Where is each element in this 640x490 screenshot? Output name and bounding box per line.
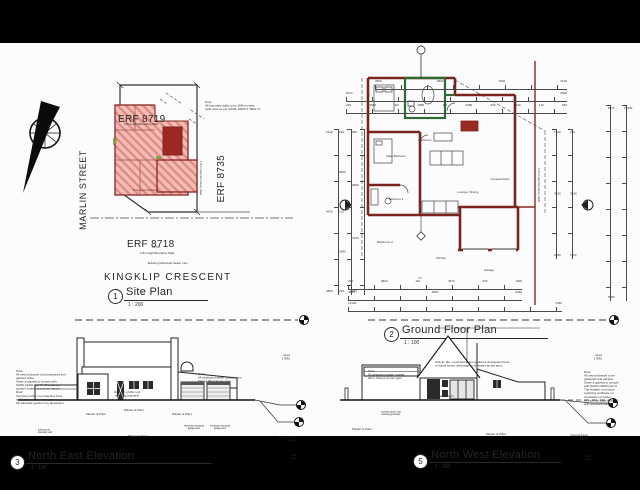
dim-value: 2980	[466, 104, 473, 107]
nw-plaster-gable: Plaster & Paint	[434, 395, 454, 399]
site-plan-number-bubble: 1	[108, 289, 123, 304]
garage-door-line: garage door	[183, 428, 205, 431]
nw-apex-label: Apex 17640	[562, 354, 602, 361]
nw-number: 5	[418, 457, 422, 466]
boundary-wall-text-right: 1.8m High Boundary Wall	[199, 161, 202, 195]
nw-number-bubble: 5	[413, 454, 428, 469]
ne-scale: 1 : 100	[31, 465, 46, 471]
note-line: alum. frames as per spec.	[368, 377, 423, 381]
dim-value: 8110	[346, 92, 352, 95]
survey-datum-markers	[295, 316, 309, 427]
dim-value: 230	[491, 104, 496, 107]
dim-value: 1880	[417, 104, 424, 107]
nw-title-underline	[429, 462, 561, 463]
low-wall-line: boundary wall	[38, 432, 68, 435]
gfp-dims-bottom3: 131401460	[348, 302, 562, 305]
dim-value: 4800	[437, 80, 444, 83]
room-bathroom2: Bathroom 2	[370, 241, 400, 245]
dim-value: 1540	[514, 104, 521, 107]
ne-number-bubble: 3	[10, 455, 25, 470]
dim-value: 110	[415, 280, 420, 283]
dim-value: 1000	[515, 280, 522, 283]
note-line: with a smooth plaster.	[584, 403, 636, 407]
room-covered-patio: Covered Patio	[482, 178, 518, 182]
nw-ngl-label: NGL 9640	[556, 455, 591, 462]
dim-value: 13140	[348, 302, 356, 305]
proposed-dwelling-label: Proposed Dwelling	[133, 189, 158, 193]
nw-title: North West Elevation	[431, 449, 540, 461]
site-plan-scale: 1 : 200	[128, 302, 143, 308]
dim-value: 4800	[326, 290, 333, 293]
room-kitchen: Kitchen	[424, 257, 458, 261]
dim-value: 940	[352, 290, 359, 293]
top-black-bar	[0, 0, 640, 43]
dim-value: 1540	[326, 131, 333, 134]
dim-value: 230	[339, 131, 346, 134]
nw-ngl-value: 9640	[556, 459, 591, 463]
ne-title: North East Elevation	[28, 450, 134, 462]
section-cut-marker-right	[581, 200, 593, 210]
gfp-dims-right3: 81106980	[608, 107, 615, 299]
gfp-dims-right1: 154042302980	[554, 131, 561, 257]
ne-title-underline	[26, 463, 212, 464]
gfp-dims-left1: 154066304800	[326, 131, 333, 293]
dim-value: 4230	[554, 193, 561, 196]
nw-gf-value: 13040	[548, 438, 588, 442]
gfp-dims-top1: 3660480015402130	[375, 80, 567, 83]
nw-callout-note: 100mm dia. round aluminium gutters & dow…	[435, 361, 545, 368]
dim-value: 3660	[339, 171, 346, 174]
dim-value: 8110	[608, 107, 615, 110]
dim-value: 6980	[608, 296, 615, 299]
gfp-dim-bot-2	[348, 296, 522, 301]
dim-value: 940	[562, 104, 567, 107]
gfp-dims-right2: 23036606110	[570, 131, 577, 257]
gfp-dims-left2: 23036601102980230	[339, 131, 346, 293]
dim-value: 6630	[326, 211, 333, 214]
dim-value: 2980	[554, 254, 561, 257]
gfp-dim-bot-1	[348, 285, 522, 290]
dim-value: 230	[339, 290, 346, 293]
dim-value: 2980	[339, 250, 346, 253]
ne-gf-label: Ground Floor 13040	[256, 436, 296, 443]
sewer-line-text: Existing Municipal Sewer Line	[148, 262, 188, 266]
dim-value: 110	[339, 211, 346, 214]
gfp-dims-left3: 96028801540940	[352, 131, 359, 293]
site-plan-linework	[60, 55, 335, 275]
nw-band-label: Victorian profile roofsheeting (painted)	[368, 411, 414, 416]
plan-diamond-tag: 103	[418, 277, 426, 280]
gfp-dims-top2: 81106520	[346, 92, 567, 95]
room-bedroom2: Bedroom 2	[378, 198, 414, 202]
ne-plaster-left: Plaster & Paint	[86, 413, 106, 417]
nw-scale: 1 : 100	[435, 464, 450, 470]
boundary-wall-text-bottom: 1.8m High Boundary Wall	[140, 252, 174, 256]
gfp-dims-bottom2: 488048002230	[348, 291, 522, 294]
dim-value: 110	[394, 104, 399, 107]
ne-plaster-low: Plaster & Paint	[128, 435, 148, 439]
site-dim-bottom: 24,51	[152, 246, 160, 250]
dim-value: 230	[346, 104, 351, 107]
sheet: ERF 8719 Note:All boundary walls to be 1…	[0, 43, 640, 436]
nw-plaster-left: Plaster & Paint	[352, 428, 372, 432]
ne-notes-mid: Note:All windows powder coated alum.fram…	[198, 373, 253, 384]
room-bathroom: Bathroom	[412, 139, 438, 143]
dim-value: 110	[442, 104, 447, 107]
nw-notes-right: Note:All new brickwork to beplastered an…	[584, 371, 636, 406]
ne-gf-value: 13040	[256, 440, 296, 444]
dim-value: 4800	[432, 291, 439, 294]
ne-notes-left: Note:All new brickwork to be plastered a…	[16, 370, 76, 405]
dim-value: 960	[352, 131, 359, 134]
dim-value: 4800	[381, 280, 388, 283]
dim-value: 1540	[352, 237, 359, 240]
ne-ngl-value: 9640	[262, 458, 297, 462]
site-note-line: solid units as per SANS 10400 X Table 17	[205, 108, 320, 112]
nw-notes-left: Note:All windows powder coatedalum. fram…	[368, 370, 423, 381]
ne-plaster-garage: Plaster & Paint	[172, 413, 192, 417]
dim-value: 230	[482, 280, 487, 283]
drawing-sheet-screenshot: ERF 8719 Note:All boundary walls to be 1…	[0, 0, 640, 490]
dim-value: 1460	[555, 302, 562, 305]
dim-value: 2230	[515, 291, 522, 294]
gfp-dim-left-3	[360, 129, 365, 295]
marlin-street-label: MARLIN STREET	[78, 150, 88, 230]
dim-value: 2130	[560, 80, 567, 83]
room-lounge: Lounge / Dining	[448, 191, 488, 195]
note-line: frames fitted as per spec.	[198, 380, 253, 384]
dim-value: 15090	[624, 107, 632, 110]
boundary-wall-text-top: 1.8m High Boundary Wall	[124, 123, 158, 127]
note-line: All rainwater goods to be aluminium.	[16, 402, 76, 406]
dim-value: 2880	[352, 184, 359, 187]
callout-line: to fascia board, discharge to rainwater …	[435, 365, 545, 369]
ne-ngl-label: NGL 9640	[262, 454, 297, 461]
kingklip-crescent-label: KINGKLIP CRESCENT	[104, 272, 232, 283]
dim-value: 3660	[375, 80, 382, 83]
gfp-dims-top3: 2303660110188011029802301540110940	[346, 104, 567, 107]
north-arrow-compass-icon	[14, 100, 66, 200]
dim-value: 6520	[560, 92, 567, 95]
gfp-dim-top-3	[346, 109, 567, 114]
dim-value: 4570	[448, 280, 455, 283]
roof-label-line: sheeting (painted)	[92, 395, 162, 399]
ne-garage-door-label-2: Aluminium sectionalgarage door	[209, 425, 231, 430]
gfp-boundary-wall-text: 1.8m High Boundary Wall	[537, 168, 540, 202]
braai-label: Braai	[464, 166, 479, 169]
dim-value: 230	[570, 131, 577, 134]
nw-gf-label: Ground Floor 13040	[548, 434, 588, 441]
erf-8718-label: ERF 8718	[127, 239, 174, 250]
gfp-dims-right4: 15090	[624, 107, 632, 299]
site-note: Note:All boundary walls to be 180mm wide…	[205, 101, 320, 112]
ne-apex-label: Apex 17640	[250, 354, 290, 361]
gfp-dim-top-1	[375, 85, 567, 90]
gfp-dim-top-2	[346, 97, 567, 102]
site-title-underline	[124, 300, 208, 301]
room-main-bedroom: Main Bedroom	[376, 155, 416, 159]
nw-plaster-right: Plaster & Paint	[486, 433, 506, 437]
ne-garage-door-label-1: Aluminium sectionalgarage door	[183, 425, 205, 430]
gfp-dims-bottom1: 230480011045702301000	[348, 280, 522, 283]
dim-value: 3660	[570, 193, 577, 196]
site-plan-number: 1	[113, 292, 117, 301]
nw-apex-value: 17640	[562, 358, 602, 362]
ne-apex-value: 17640	[250, 358, 290, 362]
site-dim-left: 31,42	[112, 138, 115, 146]
dim-value: 1540	[499, 80, 506, 83]
band-label-line: sheeting (painted)	[368, 414, 414, 417]
erf-8735-label: ERF 8735	[216, 155, 227, 202]
ne-plaster-mid: Plaster & Paint	[124, 409, 144, 413]
dim-value: 6110	[570, 254, 577, 257]
dim-value: 110	[539, 104, 544, 107]
ne-roof-label: Victorian profile roofsheeting (painted)	[92, 391, 162, 398]
dim-value: 3660	[369, 104, 376, 107]
dim-value: 1540	[554, 131, 561, 134]
room-garage: Garage	[472, 269, 506, 273]
ne-low-wall-label: Existing lowboundary wall	[38, 429, 68, 434]
ne-number: 3	[15, 458, 19, 467]
site-plan-title: Site Plan	[126, 286, 173, 298]
garage-door-line: garage door	[209, 428, 231, 431]
